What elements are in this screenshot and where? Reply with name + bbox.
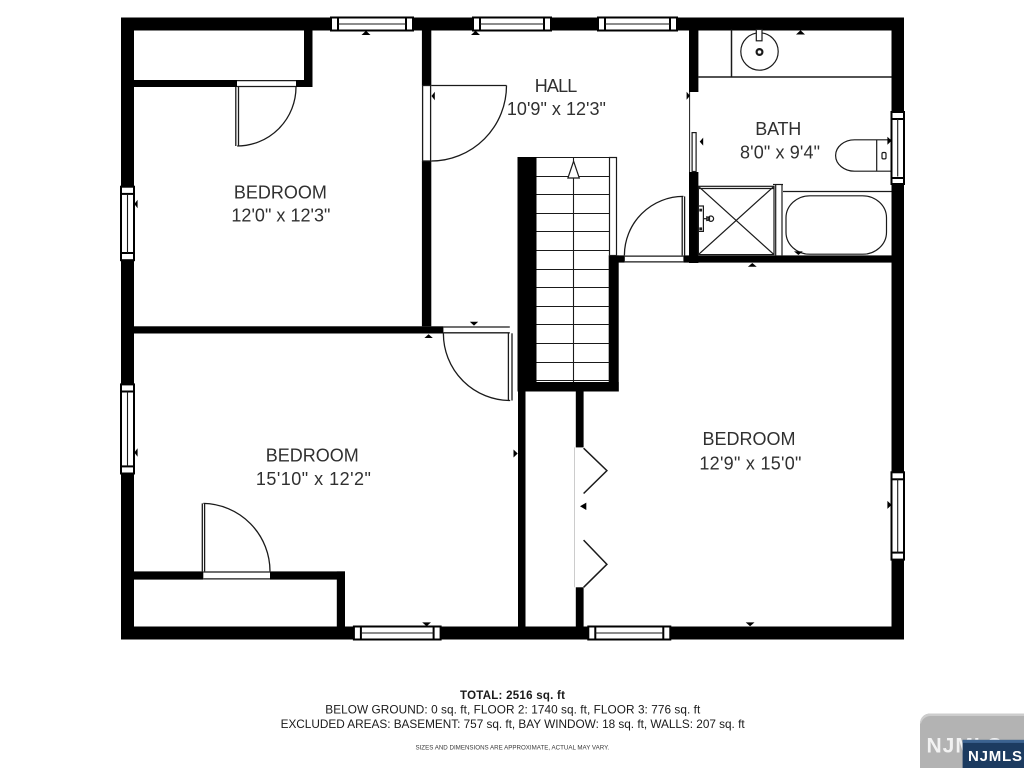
svg-text:HALL: HALL — [535, 76, 578, 96]
svg-text:BEDROOM: BEDROOM — [266, 446, 359, 466]
svg-text:EXCLUDED AREAS: BASEMENT: 757: EXCLUDED AREAS: BASEMENT: 757 sq. ft, BA… — [281, 717, 746, 731]
svg-text:10'9" x 12'3": 10'9" x 12'3" — [507, 99, 606, 119]
svg-text:TOTAL: 2516 sq. ft: TOTAL: 2516 sq. ft — [460, 690, 565, 702]
svg-text:12'0" x 12'3": 12'0" x 12'3" — [231, 206, 330, 226]
svg-text:12'9" x 15'0": 12'9" x 15'0" — [699, 453, 801, 473]
svg-text:NJMLS: NJMLS — [968, 748, 1022, 765]
svg-text:SIZES AND DIMENSIONS ARE APPRO: SIZES AND DIMENSIONS ARE APPROXIMATE, AC… — [415, 744, 609, 751]
svg-text:8'0" x 9'4": 8'0" x 9'4" — [740, 142, 820, 162]
svg-text:BELOW GROUND: 0 sq. ft, FLOOR: BELOW GROUND: 0 sq. ft, FLOOR 2: 1740 sq… — [325, 703, 701, 717]
svg-text:BATH: BATH — [755, 119, 801, 139]
svg-text:15'10" x 12'2": 15'10" x 12'2" — [256, 469, 371, 489]
svg-text:BEDROOM: BEDROOM — [702, 429, 795, 449]
svg-text:BEDROOM: BEDROOM — [234, 183, 327, 203]
